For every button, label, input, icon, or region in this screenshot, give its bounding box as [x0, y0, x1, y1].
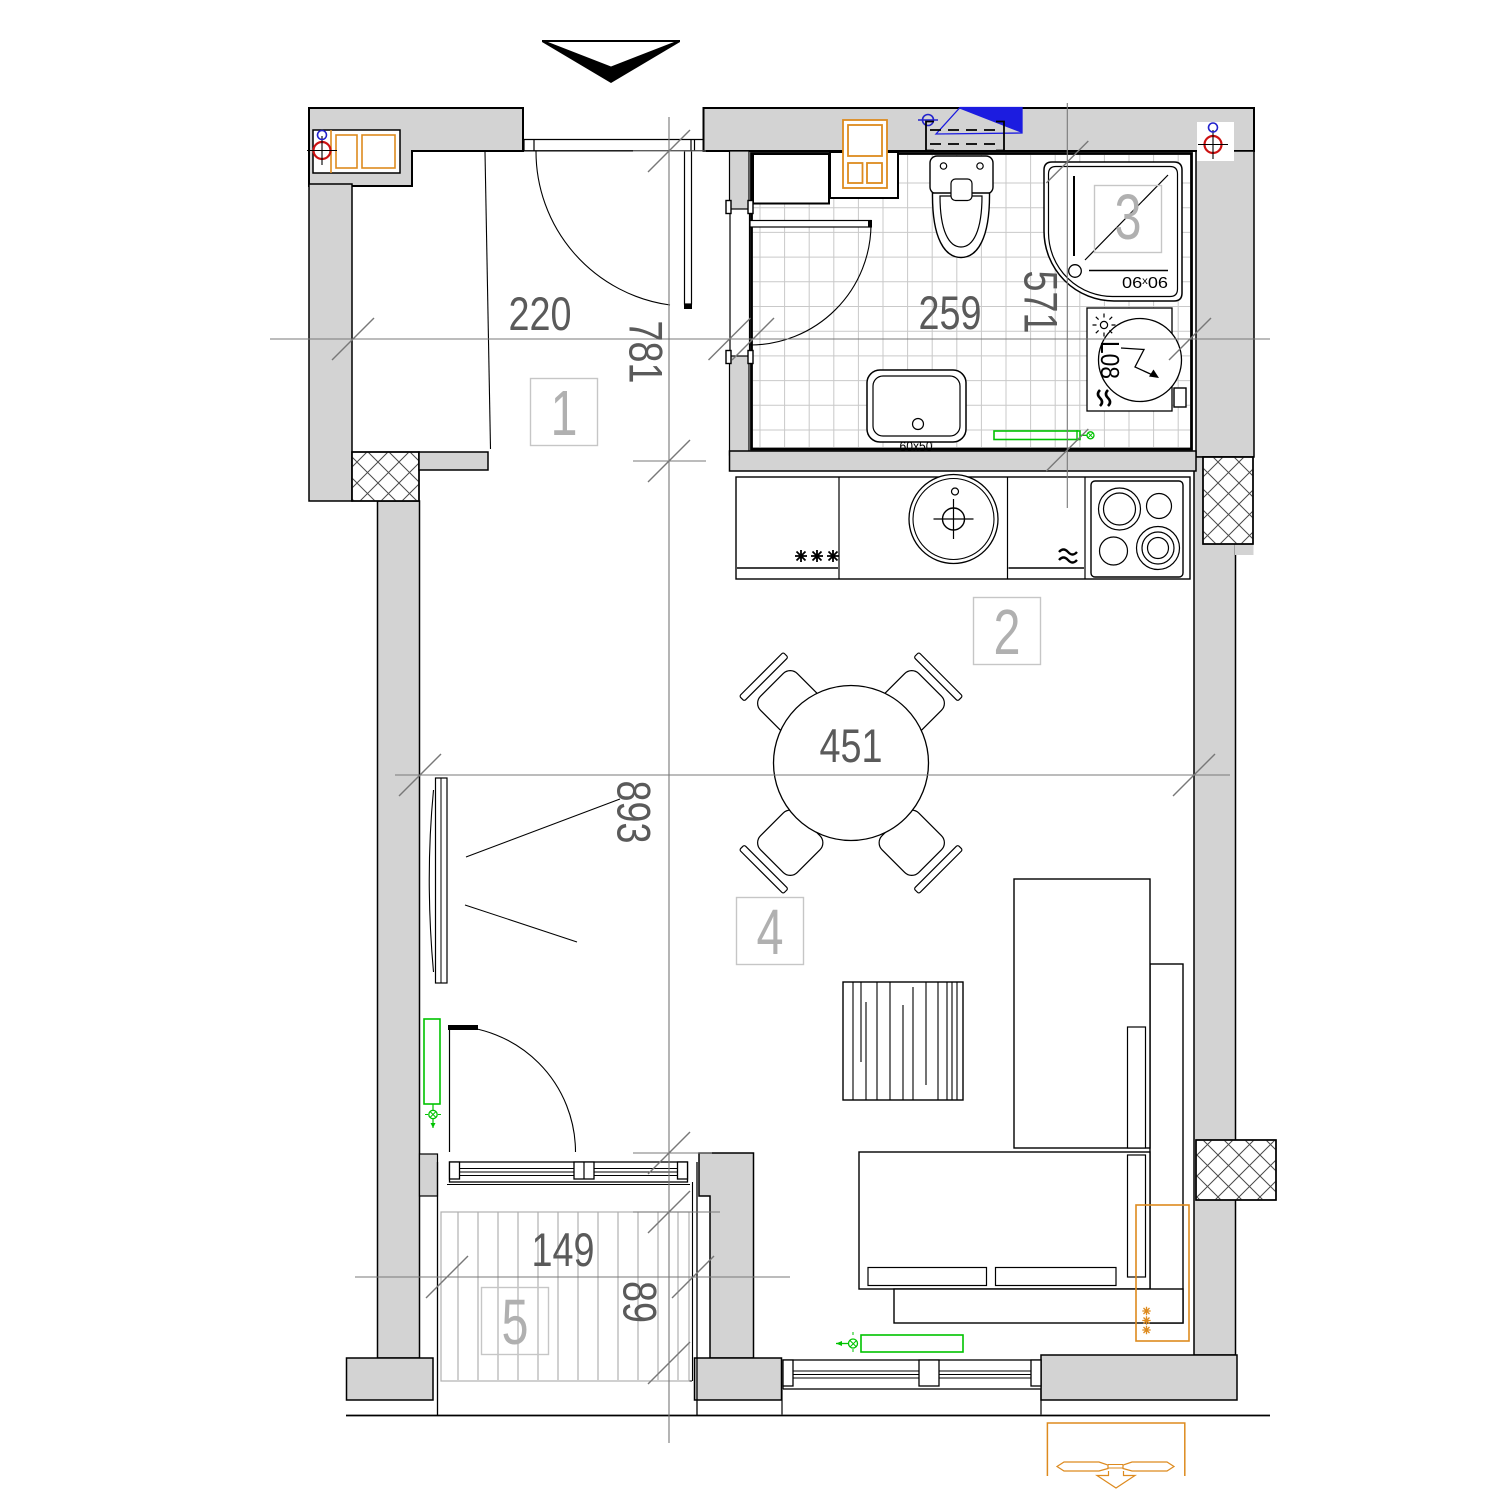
svg-text:893: 893: [608, 781, 661, 844]
svg-text:3: 3: [1115, 181, 1142, 253]
svg-text:571: 571: [1015, 271, 1068, 334]
svg-text:5: 5: [502, 1286, 529, 1358]
svg-text:259: 259: [919, 286, 982, 339]
svg-text:781: 781: [620, 321, 673, 384]
svg-text:L08: L08: [1095, 341, 1125, 379]
svg-text:149: 149: [532, 1223, 595, 1276]
svg-text:220: 220: [509, 287, 572, 340]
svg-text:60x50: 60x50: [900, 438, 933, 454]
svg-text:4: 4: [757, 896, 784, 968]
svg-text:451: 451: [820, 719, 883, 772]
svg-text:89: 89: [614, 1281, 667, 1323]
svg-text:2: 2: [994, 596, 1021, 668]
svg-text:1: 1: [551, 377, 578, 449]
